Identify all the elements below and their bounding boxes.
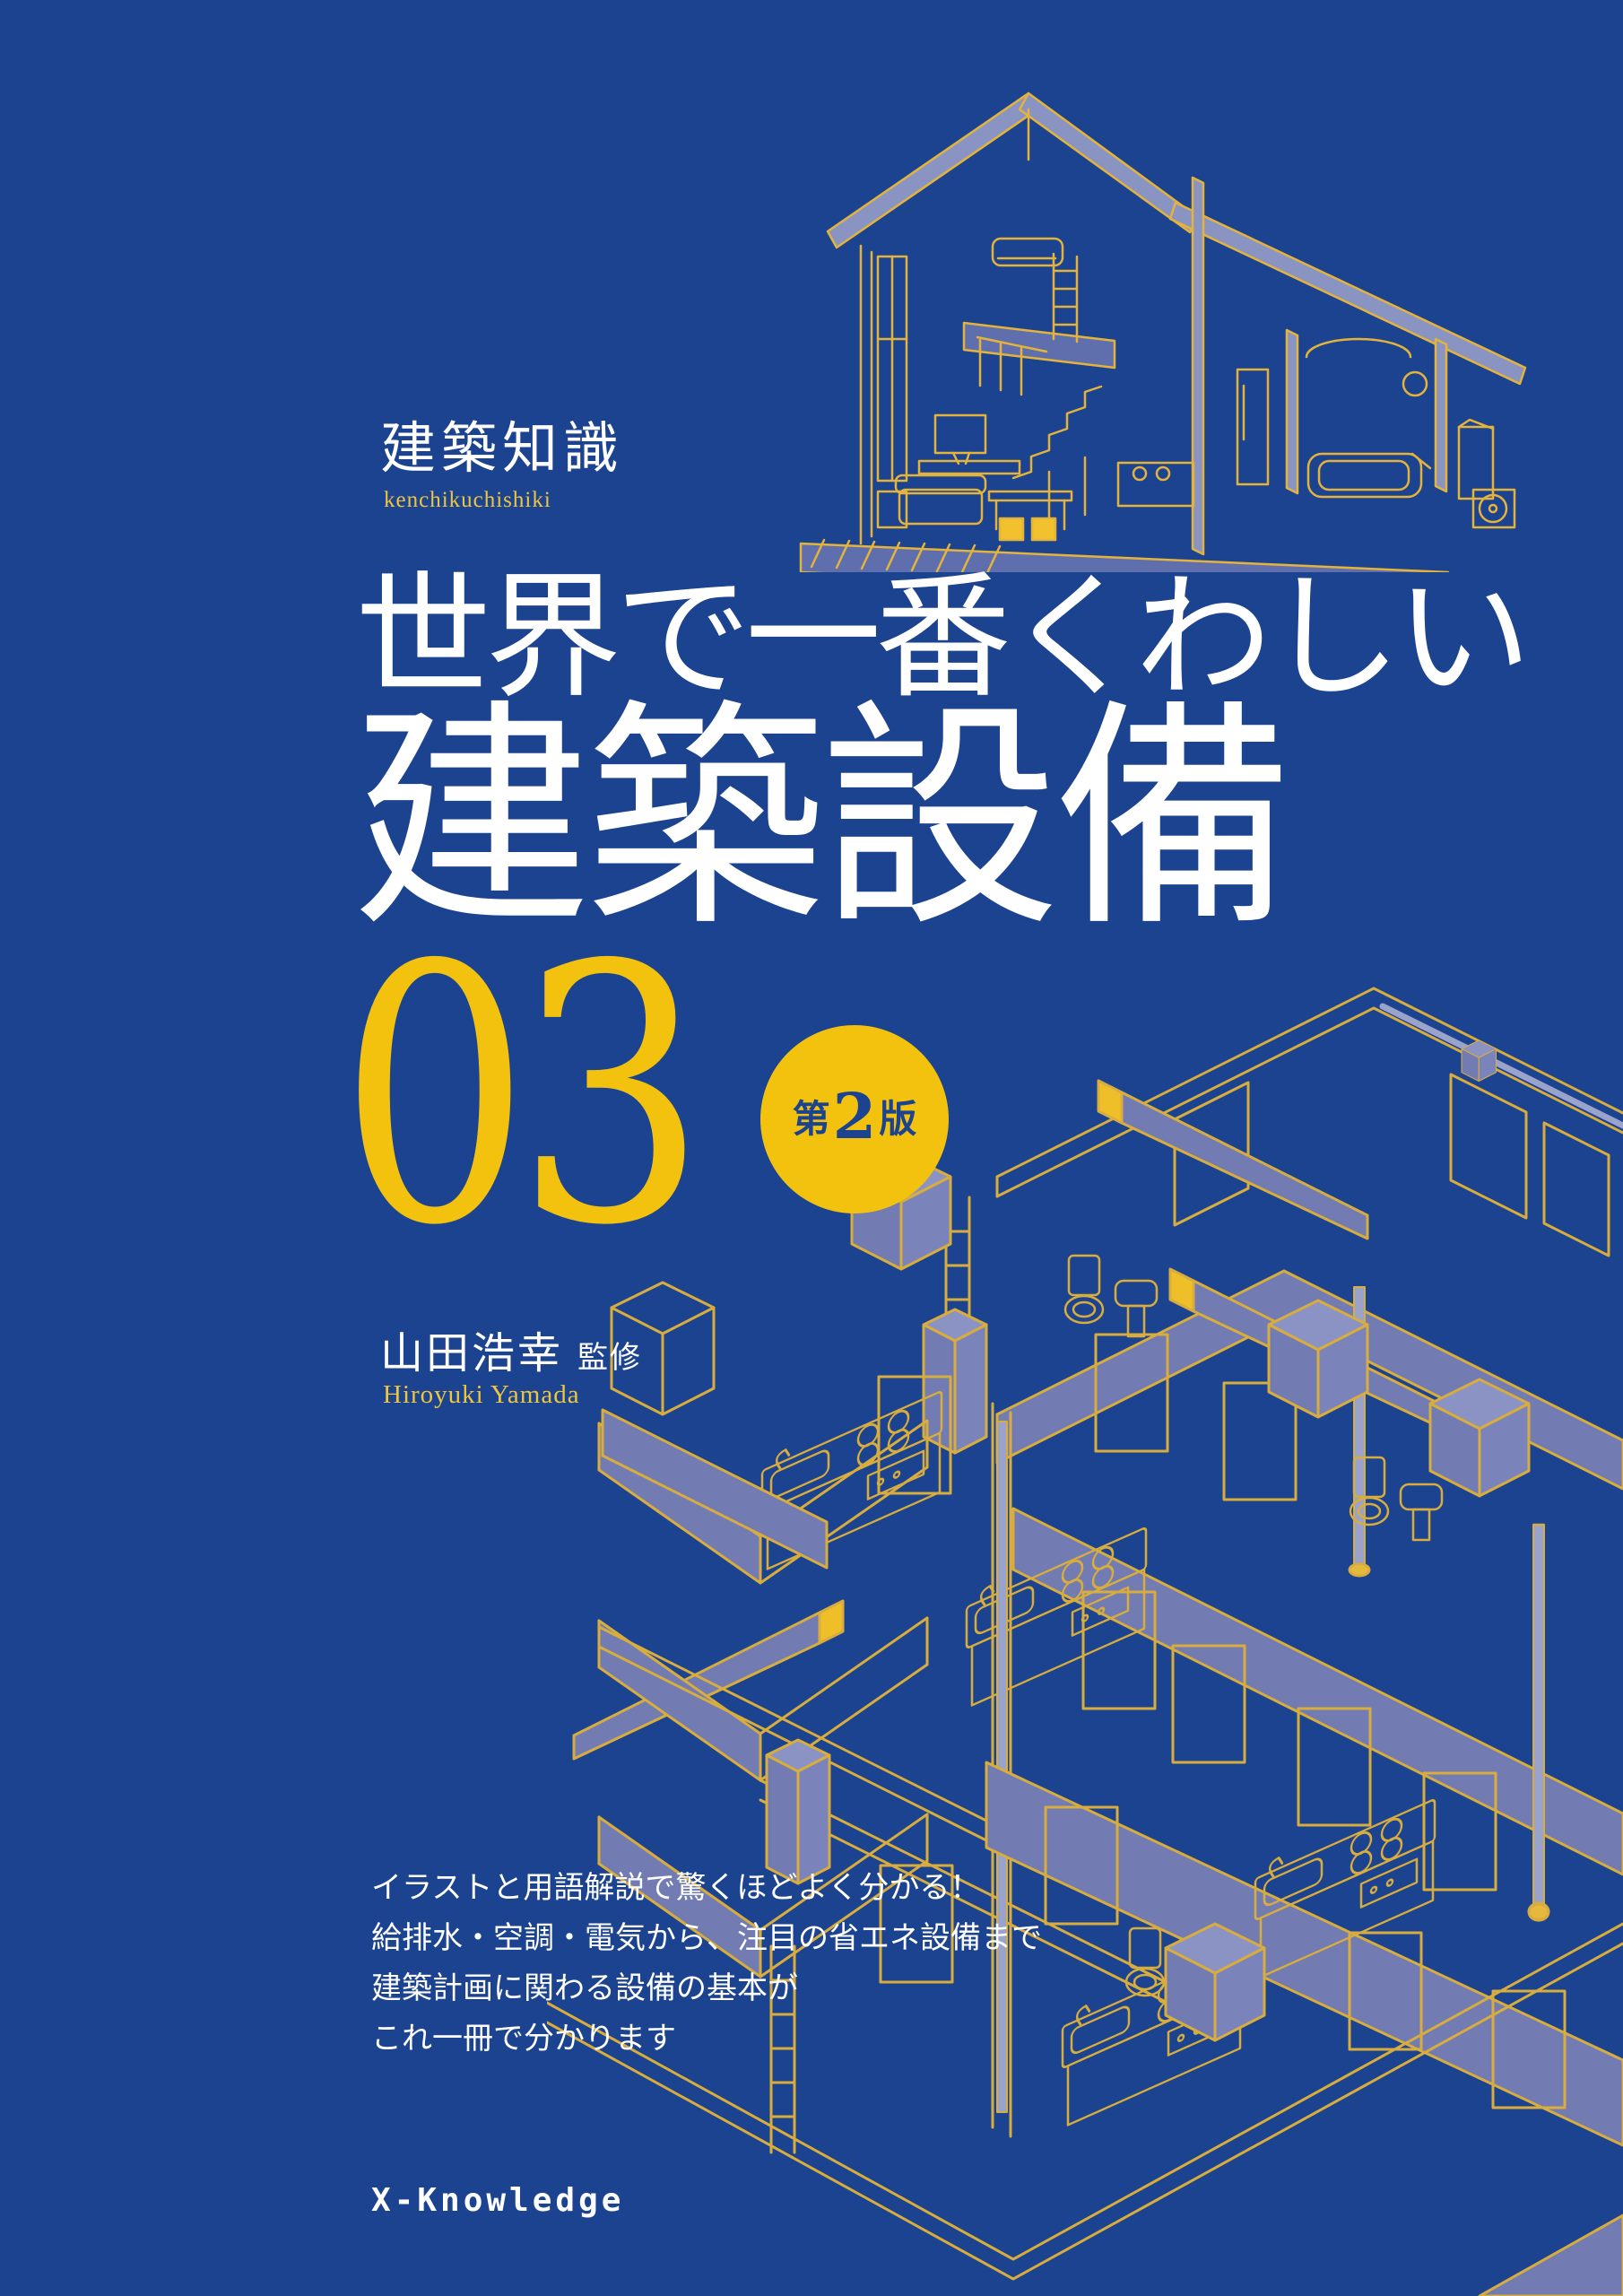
apartment-isometric-illustration (547, 969, 1623, 2296)
edition-prefix: 第 (793, 1100, 830, 1138)
tagline-line: 給排水・空調・電気から、注目の省エネ設備まで (371, 1914, 1042, 1964)
book-cover: 建築知識 kenchikuchishiki 世界で一番くわしい 建築設備 03 … (0, 0, 1623, 2296)
publisher-logo: X-Knowledge (371, 2185, 624, 2217)
tagline-block: イラストと用語解説で驚くほどよく分かる！ 給排水・空調・電気から、注目の省エネ設… (371, 1864, 1042, 2065)
author-line: 山田浩幸監修 (380, 1333, 642, 1376)
book-title-main: 建築設備 (352, 701, 1288, 942)
edition-badge: 第 2 版 (760, 1025, 949, 1213)
edition-suffix: 版 (879, 1100, 916, 1138)
brand-romaji: kenchikuchishiki (384, 489, 551, 511)
house-cutaway-illustration (785, 70, 1574, 572)
author-romanized: Hiroyuki Yamada (383, 1382, 580, 1408)
tagline-line: イラストと用語解説で驚くほどよく分かる！ (371, 1864, 1042, 1914)
author-name: 山田浩幸 (380, 1330, 563, 1378)
tagline-line: これ一冊で分かります (371, 2014, 1042, 2065)
brand-title: 建築知識 (380, 422, 624, 477)
author-role: 監修 (577, 1342, 642, 1375)
edition-number: 2 (833, 1085, 877, 1148)
tagline-line: 建築計画に関わる設備の基本が (371, 1964, 1042, 2014)
book-title-line1: 世界で一番くわしい (355, 570, 1525, 707)
volume-number: 03 (339, 920, 691, 1274)
